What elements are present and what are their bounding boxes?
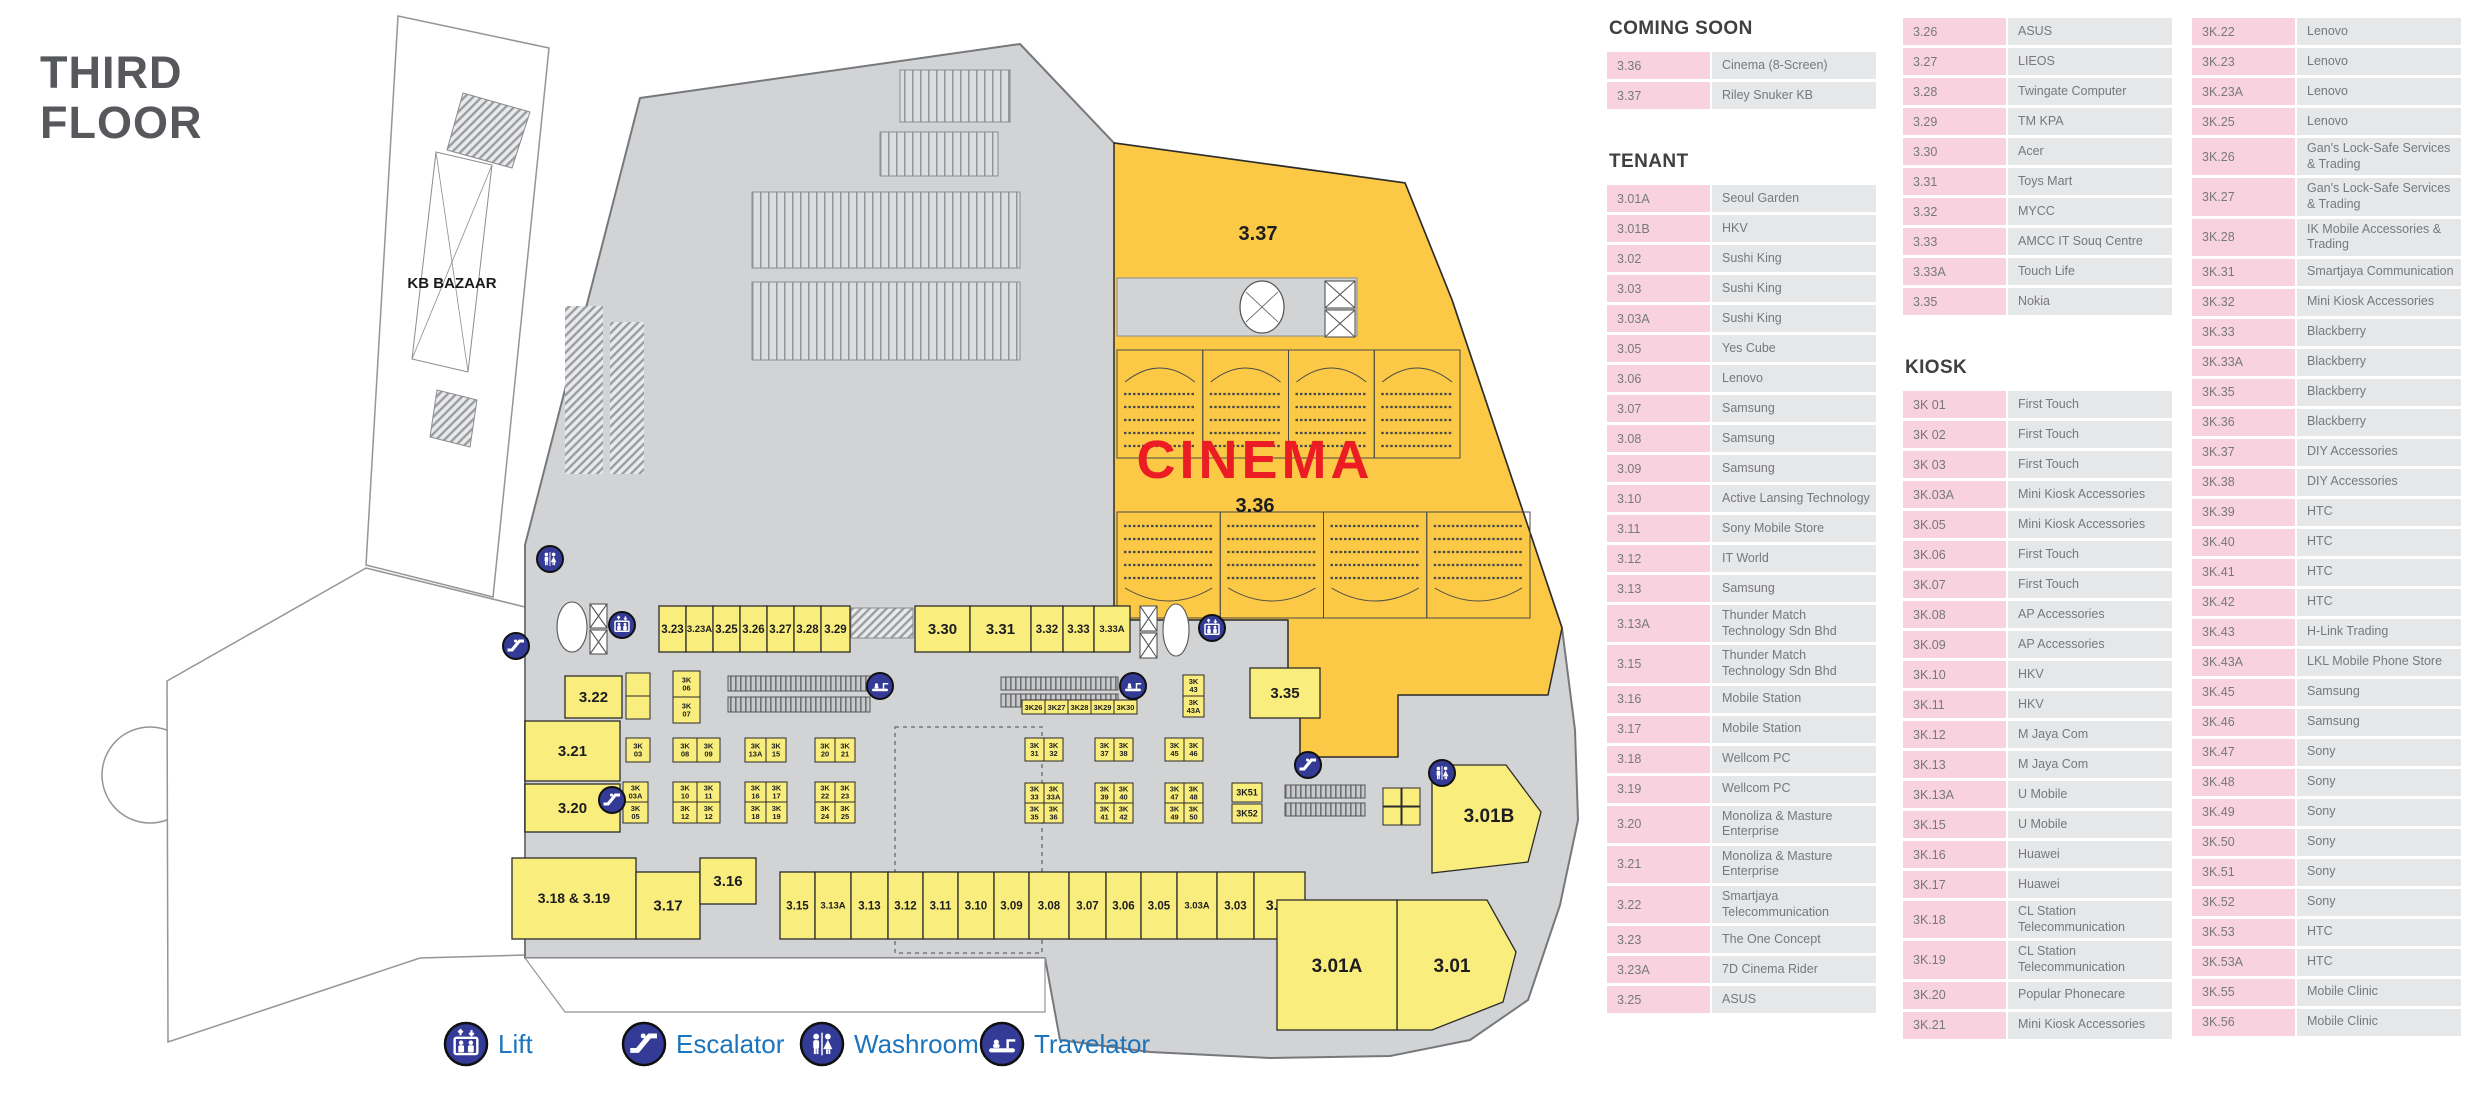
kiosk-unit-label: 3K12 <box>704 804 714 821</box>
mall-floorplan-page: THIRD FLOOR <box>0 0 2469 1100</box>
plan-unit-label: 3.25 <box>715 624 738 636</box>
tenant-name: Mini Kiosk Accessories <box>2008 481 2172 508</box>
plan-unit-label: 3.27 <box>769 624 791 636</box>
plan-unit-label: 3.05 <box>1148 900 1171 912</box>
unit-id: 3.19 <box>1607 776 1710 803</box>
tenant-name: HTC <box>2297 949 2461 976</box>
directory-row: 3.27LIEOS <box>1903 48 2175 75</box>
tenant-name: Mobile Clinic <box>2297 1009 2461 1036</box>
directory-row: 3K.06First Touch <box>1903 541 2175 568</box>
unit-id: 3K.18 <box>1903 901 2006 938</box>
unit-id: 3.03A <box>1607 305 1710 332</box>
directory-row: 3.37Riley Snuker KB <box>1607 82 1879 109</box>
kiosk-unit <box>1402 807 1420 825</box>
directory-row: 3.33ATouch Life <box>1903 258 2175 285</box>
unit-id: 3.06 <box>1607 365 1710 392</box>
plan-unit-label: 3.35 <box>1270 685 1299 702</box>
directory-row: 3K.40HTC <box>2192 529 2464 556</box>
kiosk-unit-label: 3K51 <box>1236 788 1258 798</box>
legend-washroom: Washroom <box>801 1023 979 1065</box>
kiosk-unit-label: 3K49 <box>1170 805 1180 822</box>
tenant-name: Samsung <box>1712 395 1876 422</box>
plan-unit-label: 3.31 <box>986 621 1015 638</box>
plan-unit-label: 3.30 <box>928 621 957 638</box>
tenant-name: Thunder Match Technology Sdn Bhd <box>1712 645 1876 682</box>
unit-id: 3.33A <box>1903 258 2006 285</box>
kiosk-unit-label: 3K27 <box>1048 703 1066 712</box>
unit-id: 3K.33 <box>2192 319 2295 346</box>
unit-id: 3.20 <box>1607 806 1710 843</box>
kiosk-unit-label: 3K18 <box>751 804 761 821</box>
directory-row: 3.07Samsung <box>1607 395 1879 422</box>
legend-travelator: Travelator <box>981 1023 1150 1065</box>
directory-row: 3K.36Blackberry <box>2192 409 2464 436</box>
directory-row: 3.31Toys Mart <box>1903 168 2175 195</box>
kiosk-unit-label: 3K15 <box>771 742 781 759</box>
tenant-name: Blackberry <box>2297 349 2461 376</box>
directory-row: 3K.19CL Station Telecommunication <box>1903 941 2175 978</box>
directory-section-header: KIOSK <box>1905 357 2175 379</box>
tenant-name: Toys Mart <box>2008 168 2172 195</box>
plan-label-cinema: CINEMA <box>1137 430 1374 490</box>
unit-id: 3.11 <box>1607 515 1710 542</box>
unit-id: 3K 01 <box>1903 391 2006 418</box>
unit-id: 3K.56 <box>2192 1009 2295 1036</box>
directory-row: 3.19Wellcom PC <box>1607 776 1879 803</box>
unit-id: 3.05 <box>1607 335 1710 362</box>
tenant-name: HKV <box>2008 691 2172 718</box>
kiosk-unit-label: 3K16 <box>751 784 761 801</box>
kiosk-unit-label: 3K38 <box>1119 741 1129 758</box>
unit-id: 3.26 <box>1903 18 2006 45</box>
ramp-hatch-1 <box>565 306 603 474</box>
unit-id: 3K.40 <box>2192 529 2295 556</box>
directory-row: 3K.12M Jaya Com <box>1903 721 2175 748</box>
directory-row: 3K.11HKV <box>1903 691 2175 718</box>
floorplan: 3.233.23A3.253.263.273.283.293.303.313.3… <box>0 0 1580 1100</box>
directory-row: 3.26ASUS <box>1903 18 2175 45</box>
directory-row: 3.22Smartjaya Telecommunication <box>1607 886 1879 923</box>
tenant-name: Lenovo <box>2297 18 2461 45</box>
unit-id: 3.36 <box>1607 52 1710 79</box>
tenant-name: Samsung <box>2297 679 2461 706</box>
plan-unit-label: 3.12 <box>894 900 916 912</box>
tenant-name: LIEOS <box>2008 48 2172 75</box>
plan-label-3-36: 3.36 <box>1236 495 1275 517</box>
directory-row: 3K.43ALKL Mobile Phone Store <box>2192 649 2464 676</box>
travelator-icon <box>867 673 893 699</box>
directory-row: 3.15Thunder Match Technology Sdn Bhd <box>1607 645 1879 682</box>
tenant-name: Sony <box>2297 859 2461 886</box>
unit-id: 3K.08 <box>1903 601 2006 628</box>
kiosk-unit-label: 3K41 <box>1100 805 1110 822</box>
directory-row: 3.21Monoliza & Masture Enterprise <box>1607 846 1879 883</box>
kiosk-unit-label: 3K08 <box>680 742 690 759</box>
unit-id: 3K.09 <box>1903 631 2006 658</box>
tenant-name: Sony <box>2297 799 2461 826</box>
kiosk-unit-label: 3K05 <box>631 804 641 821</box>
directory-row: 3.09Samsung <box>1607 455 1879 482</box>
plan-unit-label: 3.23A <box>687 624 712 635</box>
unit-id: 3K.49 <box>2192 799 2295 826</box>
unit-id: 3.09 <box>1607 455 1710 482</box>
unit-id: 3.16 <box>1607 686 1710 713</box>
plan-unit-label: 3.18 & 3.19 <box>538 890 611 906</box>
directory-row: 3K.47Sony <box>2192 739 2464 766</box>
directory-row: 3K.35Blackberry <box>2192 379 2464 406</box>
directory-row: 3.23The One Concept <box>1607 926 1879 953</box>
kiosk-unit-label: 3K07 <box>682 702 692 719</box>
plan-unit-label: 3.07 <box>1076 900 1098 912</box>
tenant-name: First Touch <box>2008 571 2172 598</box>
unit-id: 3K.47 <box>2192 739 2295 766</box>
tenant-name: Sony <box>2297 739 2461 766</box>
kiosk-unit-label: 3K42 <box>1119 805 1129 822</box>
ramp-hatch-2 <box>610 322 644 474</box>
lift-icon <box>445 1023 487 1065</box>
tenant-name: First Touch <box>2008 391 2172 418</box>
tenant-name: U Mobile <box>2008 781 2172 808</box>
unit-id: 3K.20 <box>1903 982 2006 1009</box>
directory-row: 3.08Samsung <box>1607 425 1879 452</box>
storage-grid-4 <box>900 70 1010 122</box>
legend-label: Washroom <box>854 1029 979 1059</box>
directory-row: 3.13Samsung <box>1607 575 1879 602</box>
kiosk-unit-label: 3K12 <box>680 804 690 821</box>
kb-bazaar-stair-hatch <box>430 390 477 447</box>
kiosk-unit-label: 3K45 <box>1170 741 1180 758</box>
directory-row: 3.12IT World <box>1607 545 1879 572</box>
unit-id: 3K.25 <box>2192 108 2295 135</box>
plan-unit-label: 3.11 <box>930 900 952 912</box>
directory-row: 3K.43H-Link Trading <box>2192 619 2464 646</box>
directory-row: 3K.05Mini Kiosk Accessories <box>1903 511 2175 538</box>
directory-row: 3.23A7D Cinema Rider <box>1607 956 1879 983</box>
unit-id: 3K.13A <box>1903 781 2006 808</box>
tenant-name: Samsung <box>1712 425 1876 452</box>
tenant-name: AP Accessories <box>2008 601 2172 628</box>
tenant-name: First Touch <box>2008 451 2172 478</box>
unit-id: 3.37 <box>1607 82 1710 109</box>
directory-row: 3K.46Samsung <box>2192 709 2464 736</box>
unit-id: 3K.38 <box>2192 469 2295 496</box>
unit-id: 3K.50 <box>2192 829 2295 856</box>
kiosk-unit-label: 3K11 <box>704 784 714 801</box>
storage-grid-3 <box>880 132 998 176</box>
tenant-name: HTC <box>2297 529 2461 556</box>
directory-row: 3K.25Lenovo <box>2192 108 2464 135</box>
directory-row: 3K.33ABlackberry <box>2192 349 2464 376</box>
tenant-name: Sony <box>2297 769 2461 796</box>
tenant-name: Monoliza & Masture Enterprise <box>1712 806 1876 843</box>
unit-id: 3K.15 <box>1903 811 2006 838</box>
tenant-name: LKL Mobile Phone Store <box>2297 649 2461 676</box>
unit-id: 3.08 <box>1607 425 1710 452</box>
directory-row: 3K.55Mobile Clinic <box>2192 979 2464 1006</box>
kiosk-unit-label: 3K03 <box>633 742 643 759</box>
directory-row: 3.01ASeoul Garden <box>1607 185 1879 212</box>
tenant-name: Blackberry <box>2297 319 2461 346</box>
plan-unit-label: 3.28 <box>796 624 819 636</box>
directory-row: 3K.07First Touch <box>1903 571 2175 598</box>
travelator-icon <box>1120 673 1146 699</box>
plan-unit-label: 3.13A <box>820 901 845 912</box>
unit-id: 3.01A <box>1607 185 1710 212</box>
tenant-name: First Touch <box>2008 421 2172 448</box>
unit-id: 3K.41 <box>2192 559 2295 586</box>
tenant-name: Twingate Computer <box>2008 78 2172 105</box>
unit-id: 3.12 <box>1607 545 1710 572</box>
kiosk-unit-label: 3K19 <box>772 804 782 821</box>
kiosk-unit-label: 3K26 <box>1025 703 1043 712</box>
plan-unit-label: 3.08 <box>1038 900 1061 912</box>
directory-row: 3K.56Mobile Clinic <box>2192 1009 2464 1036</box>
unit-id: 3.21 <box>1607 846 1710 883</box>
kiosk-unit-label: 3K21 <box>840 742 850 759</box>
directory-row: 3.05Yes Cube <box>1607 335 1879 362</box>
tenant-name: DIY Accessories <box>2297 469 2461 496</box>
tenant-name: First Touch <box>2008 541 2172 568</box>
directory-row: 3K.41HTC <box>2192 559 2464 586</box>
unit-id: 3.27 <box>1903 48 2006 75</box>
directory-row: 3K.42HTC <box>2192 589 2464 616</box>
unit-id: 3.30 <box>1903 138 2006 165</box>
directory-row: 3.25ASUS <box>1607 986 1879 1013</box>
directory-row: 3.32MYCC <box>1903 198 2175 225</box>
directory-column-1: COMING SOON3.36Cinema (8-Screen)3.37Rile… <box>1607 18 1879 1016</box>
kiosk-unit <box>1383 807 1401 825</box>
kiosk-unit-label: 3K43 <box>1189 677 1199 694</box>
kiosk-unit-label: 3K10 <box>680 784 690 801</box>
plan-unit-label: 3.26 <box>742 624 764 636</box>
plan-label-3-01a: 3.01A <box>1312 956 1363 977</box>
tenant-name: Samsung <box>1712 575 1876 602</box>
tenant-name: Mobile Station <box>1712 716 1876 743</box>
tenant-name: IT World <box>1712 545 1876 572</box>
unit-id: 3K.19 <box>1903 941 2006 978</box>
unit-id: 3K.43 <box>2192 619 2295 646</box>
tenant-name: Wellcom PC <box>1712 746 1876 773</box>
unit-id: 3K.17 <box>1903 871 2006 898</box>
directory-row: 3.02Sushi King <box>1607 245 1879 272</box>
directory-row: 3K.33Blackberry <box>2192 319 2464 346</box>
directory-row: 3K.17Huawei <box>1903 871 2175 898</box>
tenant-name: Gan's Lock-Safe Services & Trading <box>2297 138 2461 175</box>
unit-id: 3K.55 <box>2192 979 2295 1006</box>
unit-id: 3.35 <box>1903 288 2006 315</box>
tenant-name: HKV <box>2008 661 2172 688</box>
plan-unit-label: 3.16 <box>713 873 742 890</box>
escalator-icon <box>503 633 529 659</box>
kiosk-unit-label: 3K52 <box>1236 809 1258 819</box>
kiosk-unit-label: 3K30 <box>1117 703 1135 712</box>
unit-id: 3K.53 <box>2192 919 2295 946</box>
unit-id: 3K.33A <box>2192 349 2295 376</box>
unit-id: 3.17 <box>1607 716 1710 743</box>
directory-row: 3K.48Sony <box>2192 769 2464 796</box>
directory-row: 3K.38DIY Accessories <box>2192 469 2464 496</box>
directory-row: 3K.23ALenovo <box>2192 78 2464 105</box>
tenant-name: Lenovo <box>2297 108 2461 135</box>
tenant-name: Mini Kiosk Accessories <box>2008 1012 2172 1039</box>
tenant-name: Mobile Station <box>1712 686 1876 713</box>
tenant-name: Cinema (8-Screen) <box>1712 52 1876 79</box>
unit-id: 3K.39 <box>2192 499 2295 526</box>
unit-id: 3.32 <box>1903 198 2006 225</box>
unit-id: 3K.13 <box>1903 751 2006 778</box>
unit-id: 3K.28 <box>2192 219 2295 256</box>
plan-label-3-01b: 3.01B <box>1464 806 1515 827</box>
directory-row: 3K 01First Touch <box>1903 391 2175 418</box>
directory-row: 3K.18CL Station Telecommunication <box>1903 901 2175 938</box>
plan-label-3-37: 3.37 <box>1239 223 1278 245</box>
tenant-name: Sushi King <box>1712 275 1876 302</box>
unit-id: 3K.45 <box>2192 679 2295 706</box>
kiosk-unit-label: 3K31 <box>1030 741 1040 758</box>
directory-row: 3K.13AU Mobile <box>1903 781 2175 808</box>
tenant-name: Samsung <box>2297 709 2461 736</box>
unit-id: 3K.32 <box>2192 289 2295 316</box>
unit-id: 3K.12 <box>1903 721 2006 748</box>
kiosk-unit-label: 3K50 <box>1189 805 1199 822</box>
washroom-icon <box>537 546 563 572</box>
unit-id: 3.02 <box>1607 245 1710 272</box>
tenant-name: Smartjaya Communication <box>2297 259 2461 286</box>
plan-unit-label: 3.10 <box>965 900 987 912</box>
kiosk-unit <box>1383 788 1401 806</box>
plan-unit-label: 3.33A <box>1099 624 1124 635</box>
washroom-icon <box>1429 760 1455 786</box>
tenant-name: Thunder Match Technology Sdn Bhd <box>1712 605 1876 642</box>
directory-row: 3K.51Sony <box>2192 859 2464 886</box>
unit-id: 3.28 <box>1903 78 2006 105</box>
tenant-name: Acer <box>2008 138 2172 165</box>
tenant-name: Wellcom PC <box>1712 776 1876 803</box>
storage-grid-2 <box>752 282 1020 360</box>
plan-unit-label: 3.20 <box>558 800 587 817</box>
tenant-name: Lenovo <box>2297 78 2461 105</box>
escalator-icon <box>1295 752 1321 778</box>
tenant-name: Mini Kiosk Accessories <box>2297 289 2461 316</box>
plan-unit-label: 3.21 <box>558 743 587 760</box>
apron-outline <box>167 568 525 1042</box>
tenant-name: Lenovo <box>2297 48 2461 75</box>
kiosk-unit-label: 3K37 <box>1100 741 1110 758</box>
unit-id: 3K.26 <box>2192 138 2295 175</box>
directory-row: 3K.26Gan's Lock-Safe Services & Trading <box>2192 138 2464 175</box>
kiosk-unit-label: 3K22 <box>820 784 830 801</box>
tenant-name: Blackberry <box>2297 409 2461 436</box>
unit-id: 3K.46 <box>2192 709 2295 736</box>
directory-section-header: COMING SOON <box>1609 18 1879 40</box>
plan-unit-label: 3.23 <box>661 624 683 636</box>
tenant-name: Nokia <box>2008 288 2172 315</box>
tenant-name: Riley Snuker KB <box>1712 82 1876 109</box>
unit-id: 3K.43A <box>2192 649 2295 676</box>
tenant-name: Active Lansing Technology <box>1712 485 1876 512</box>
directory-row: 3K.39HTC <box>2192 499 2464 526</box>
plan-unit-label: 3.32 <box>1036 624 1058 636</box>
directory-row: 3K.15U Mobile <box>1903 811 2175 838</box>
kiosk-unit <box>626 696 650 719</box>
directory-column-3: 3K.22Lenovo3K.23Lenovo3K.23ALenovo3K.25L… <box>2192 18 2464 1039</box>
directory-row: 3K.03AMini Kiosk Accessories <box>1903 481 2175 508</box>
unit-id: 3.25 <box>1607 986 1710 1013</box>
unit-id: 3.33 <box>1903 228 2006 255</box>
unit-id: 3.23A <box>1607 956 1710 983</box>
unit-id: 3K.03A <box>1903 481 2006 508</box>
directory-row: 3.35Nokia <box>1903 288 2175 315</box>
lift-icon <box>1199 615 1225 641</box>
kiosk-unit-label: 3K40 <box>1119 785 1129 802</box>
kiosk-unit-label: 3K48 <box>1189 785 1199 802</box>
tenant-name: HTC <box>2297 559 2461 586</box>
directory-row: 3.03ASushi King <box>1607 305 1879 332</box>
tenant-name: AP Accessories <box>2008 631 2172 658</box>
unit-id: 3.01B <box>1607 215 1710 242</box>
tenant-name: Samsung <box>1712 455 1876 482</box>
storage-grid-1 <box>752 192 1020 268</box>
directory-row: 3K.32Mini Kiosk Accessories <box>2192 289 2464 316</box>
tenant-name: The One Concept <box>1712 926 1876 953</box>
plan-label-kb-bazaar: KB BAZAAR <box>407 275 496 292</box>
tenant-name: Sushi King <box>1712 305 1876 332</box>
kiosk-unit-label: 3K23 <box>840 784 850 801</box>
tenant-name: AMCC IT Souq Centre <box>2008 228 2172 255</box>
directory-row: 3.13AThunder Match Technology Sdn Bhd <box>1607 605 1879 642</box>
directory-row: 3.28Twingate Computer <box>1903 78 2175 105</box>
unit-id: 3.18 <box>1607 746 1710 773</box>
escalator-icon <box>599 787 625 813</box>
plan-unit-label: 3.22 <box>579 689 608 706</box>
kb-bazaar-tower <box>366 16 549 597</box>
tenant-name: Touch Life <box>2008 258 2172 285</box>
kiosk-unit-label: 3K25 <box>840 804 850 821</box>
tenant-name: HTC <box>2297 919 2461 946</box>
travelator-icon <box>981 1023 1023 1065</box>
kiosk-unit <box>1402 788 1420 806</box>
directory-row: 3K.49Sony <box>2192 799 2464 826</box>
directory-row: 3K.22Lenovo <box>2192 18 2464 45</box>
directory-row: 3K.45Samsung <box>2192 679 2464 706</box>
tenant-name: M Jaya Com <box>2008 751 2172 778</box>
unit-id: 3.29 <box>1903 108 2006 135</box>
tenant-name: IK Mobile Accessories & Trading <box>2297 219 2461 256</box>
unit-id: 3K.51 <box>2192 859 2295 886</box>
tenant-name: TM KPA <box>2008 108 2172 135</box>
tenant-name: Yes Cube <box>1712 335 1876 362</box>
tenant-name: HKV <box>1712 215 1876 242</box>
unit-id: 3K.22 <box>2192 18 2295 45</box>
unit-id: 3K.11 <box>1903 691 2006 718</box>
unit-id: 3.31 <box>1903 168 2006 195</box>
plan-unit-label: 3.03 <box>1224 900 1246 912</box>
cinema-corridor <box>1117 278 1357 336</box>
tenant-name: ASUS <box>2008 18 2172 45</box>
kiosk-unit-label: 3K06 <box>682 676 692 693</box>
unit-id: 3K.06 <box>1903 541 2006 568</box>
directory-row: 3K.13M Jaya Com <box>1903 751 2175 778</box>
directory-row: 3.17Mobile Station <box>1607 716 1879 743</box>
legend-label: Lift <box>498 1029 533 1059</box>
directory-row: 3.20Monoliza & Masture Enterprise <box>1607 806 1879 843</box>
tenant-name: Popular Phonecare <box>2008 982 2172 1009</box>
unit-id: 3K.23A <box>2192 78 2295 105</box>
kiosk-unit-label: 3K47 <box>1170 785 1180 802</box>
directory-row: 3K.20Popular Phonecare <box>1903 982 2175 1009</box>
tenant-name: M Jaya Com <box>2008 721 2172 748</box>
unit-id: 3K.16 <box>1903 841 2006 868</box>
